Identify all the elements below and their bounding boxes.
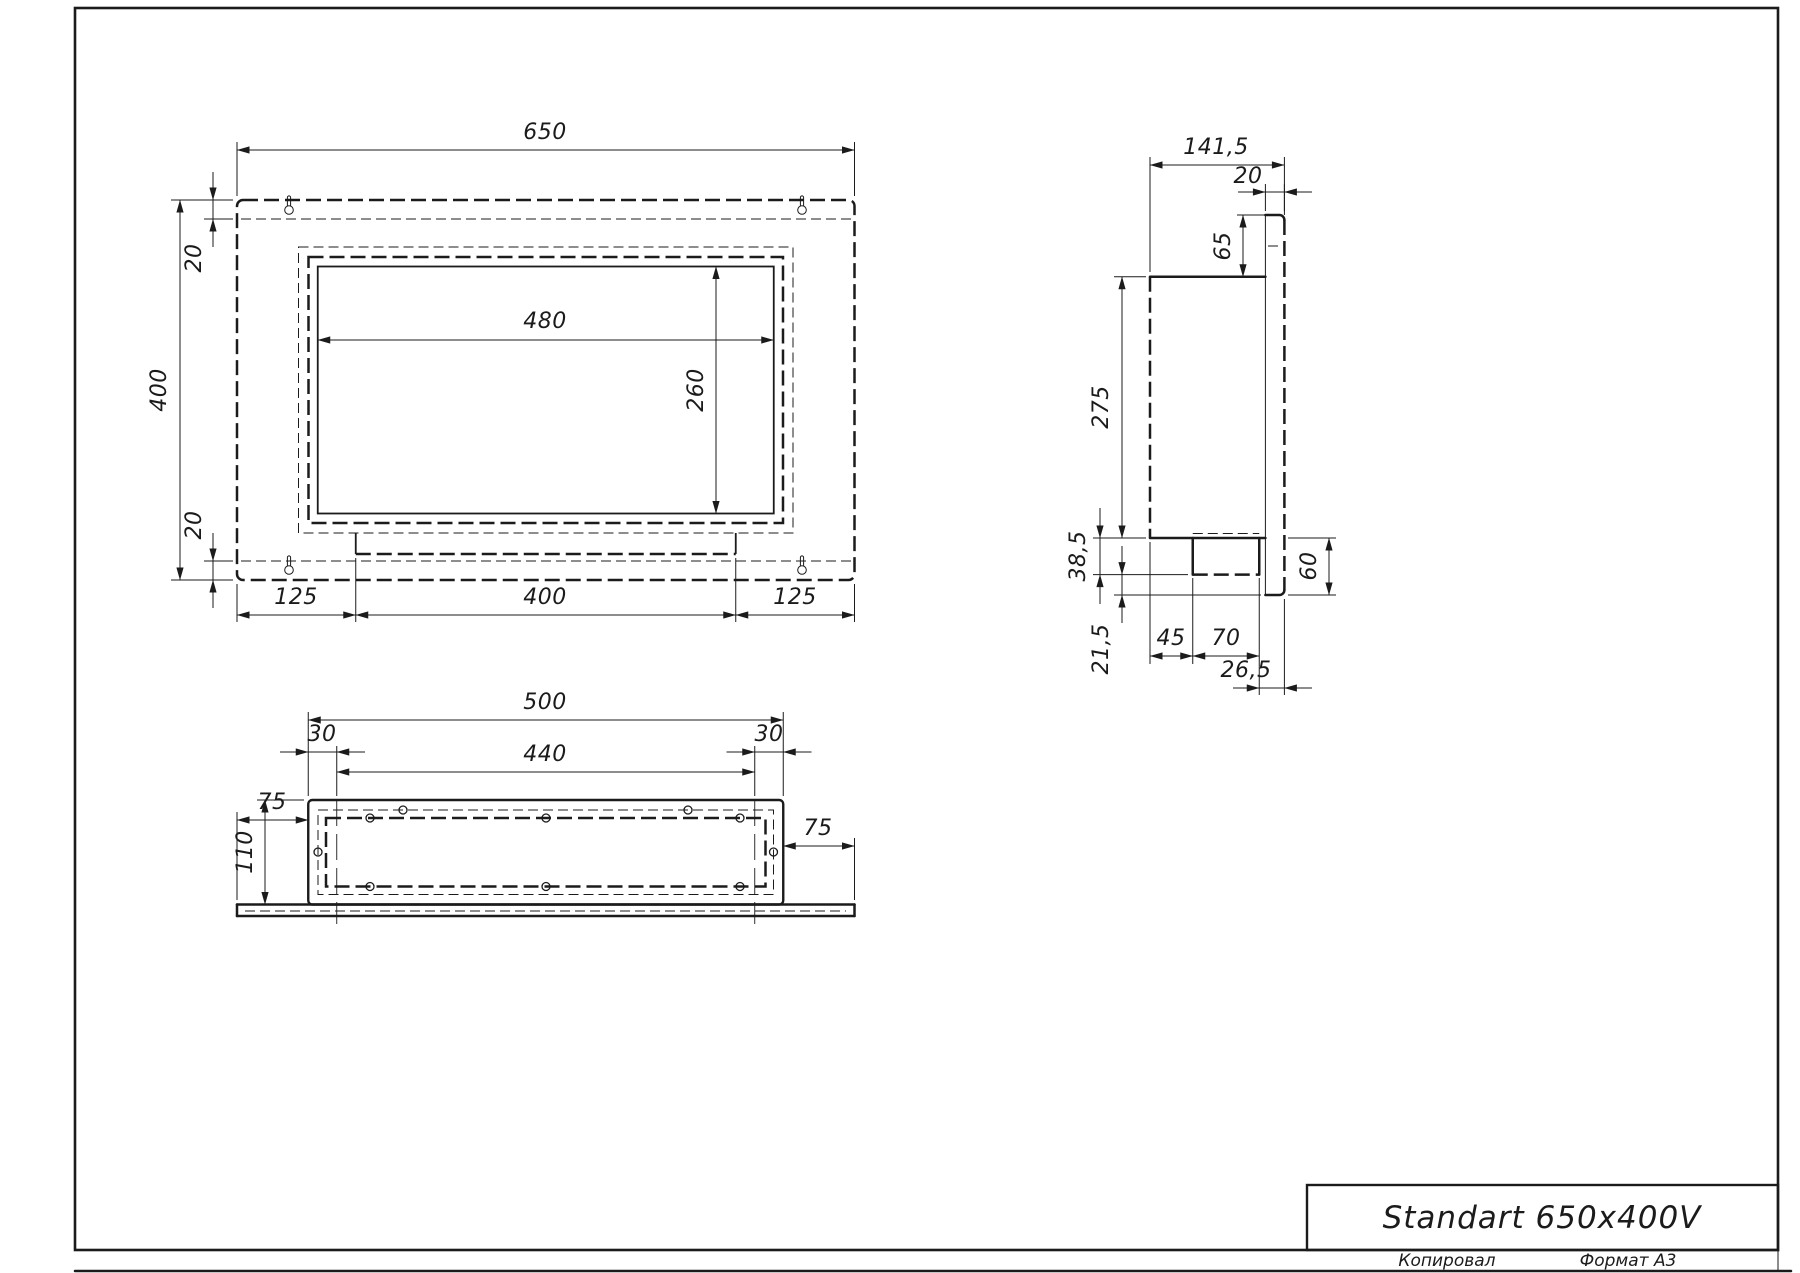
drawing-title: Standart 650x400V [1383, 1200, 1704, 1236]
dim-front-top-offset: 20 [182, 244, 207, 273]
dim-front-margin-left: 125 [274, 585, 318, 610]
dim-side-box-width: 70 [1212, 626, 1241, 651]
dim-side-depth: 141,5 [1183, 135, 1248, 160]
dim-bottom-tab-span: 440 [523, 742, 567, 767]
dim-front-overall-width: 650 [523, 120, 567, 145]
dim-front-margin-right: 125 [773, 585, 817, 610]
dim-bottom-tab-offset-left: 30 [308, 722, 337, 747]
dim-side-box-depth: 38,5 [1066, 531, 1091, 582]
dim-bottom-body-depth: 110 [233, 830, 258, 874]
dim-side-box-clearance: 21,5 [1089, 624, 1114, 675]
dim-side-panel-thickness: 20 [1234, 164, 1263, 189]
dim-bottom-flange-left: 75 [258, 790, 287, 815]
dim-front-bracket-width: 400 [523, 585, 567, 610]
dim-side-back-clearance: 26,5 [1221, 658, 1272, 683]
copied-by-label: Копировал [1398, 1251, 1495, 1271]
dim-front-overall-height: 400 [147, 368, 172, 412]
technical-drawing: 650 400 20 20 480 260 125 400 12 [0, 0, 1800, 1273]
dim-side-body-height: 275 [1089, 385, 1114, 429]
dim-side-bottom-overhang: 60 [1297, 552, 1322, 581]
dim-front-window-height: 260 [684, 368, 709, 412]
dim-side-box-offset: 45 [1157, 626, 1186, 651]
dim-bottom-body-width: 500 [523, 690, 567, 715]
format-label: Формат А3 [1580, 1251, 1677, 1271]
dim-bottom-tab-offset-right: 30 [755, 722, 784, 747]
dim-bottom-flange-right: 75 [804, 816, 833, 841]
dim-side-top-overhang: 65 [1211, 232, 1236, 261]
paper [0, 0, 1800, 1273]
dim-front-bottom-offset: 20 [182, 511, 207, 540]
dim-front-window-width: 480 [523, 309, 567, 334]
drawing-sheet: 650 400 20 20 480 260 125 400 12 [0, 0, 1800, 1273]
